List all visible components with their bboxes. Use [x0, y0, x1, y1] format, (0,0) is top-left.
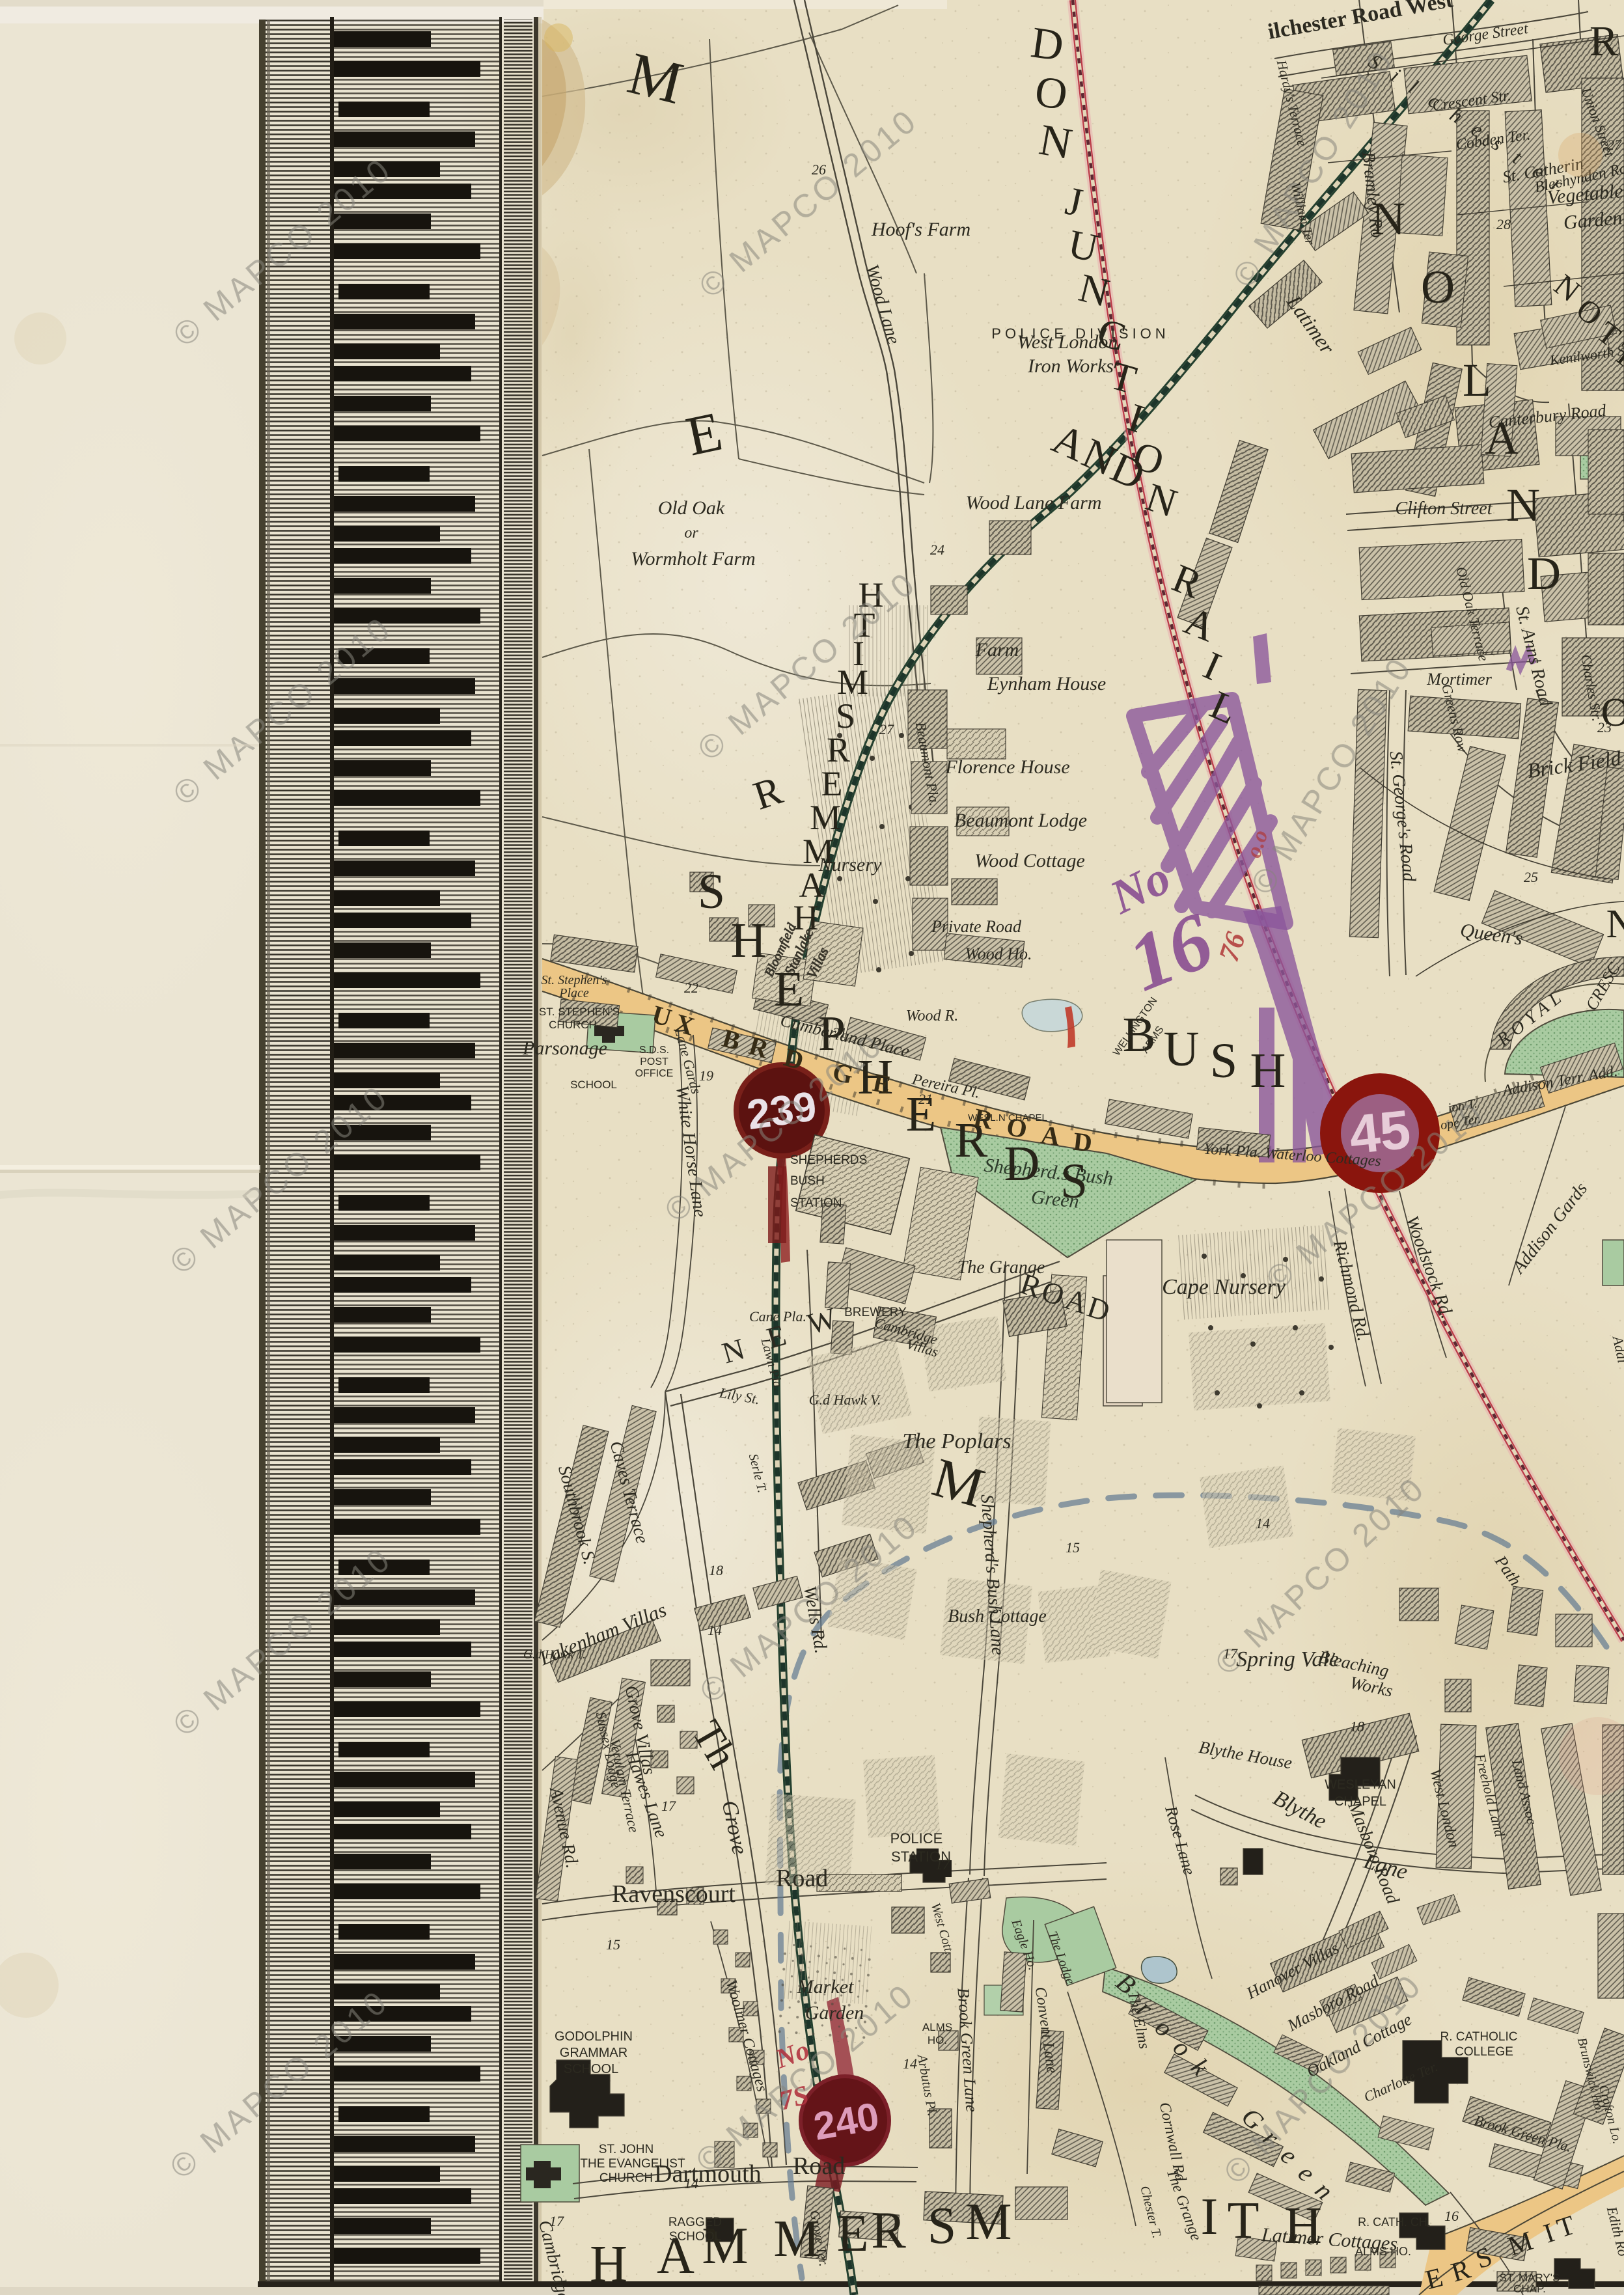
svg-text:Road: Road [793, 2152, 845, 2180]
svg-text:HO.: HO. [928, 2034, 947, 2046]
svg-text:STATION: STATION [790, 1196, 842, 1210]
svg-text:17: 17 [935, 1856, 950, 1873]
svg-text:Place: Place [558, 986, 589, 1000]
svg-text:S.D.S.: S.D.S. [639, 1045, 669, 1056]
svg-text:14: 14 [708, 1622, 722, 1638]
svg-text:17: 17 [549, 2213, 564, 2229]
svg-text:WESLEYAN: WESLEYAN [1325, 1778, 1396, 1792]
svg-text:CHAPEL: CHAPEL [1334, 1794, 1386, 1809]
svg-text:U: U [1164, 1022, 1200, 1077]
svg-text:21: 21 [918, 1091, 933, 1107]
svg-text:Market: Market [797, 1976, 854, 1998]
svg-text:H: H [1250, 1043, 1286, 1098]
svg-text:Garden: Garden [805, 2002, 864, 2024]
svg-text:Mortimer: Mortimer [1426, 670, 1493, 689]
svg-text:M: M [965, 2193, 1012, 2251]
svg-text:Iron Works: Iron Works [1027, 355, 1114, 377]
svg-text:SCHOOL: SCHOOL [564, 2062, 618, 2076]
svg-text:O: O [1421, 261, 1455, 313]
svg-text:S: S [1210, 1034, 1237, 1088]
svg-text:22: 22 [684, 980, 698, 996]
svg-text:Wood R.: Wood R. [906, 1008, 958, 1024]
svg-text:14: 14 [684, 2175, 698, 2192]
svg-text:G.d Hawk V.: G.d Hawk V. [809, 1392, 881, 1408]
svg-text:Hoof's Farm: Hoof's Farm [871, 219, 970, 240]
svg-text:24: 24 [930, 542, 944, 558]
svg-text:D: D [1004, 1136, 1040, 1191]
svg-text:17: 17 [661, 1798, 676, 1814]
svg-text:R: R [827, 730, 850, 769]
svg-text:14: 14 [1256, 1515, 1270, 1532]
svg-text:or: or [684, 525, 698, 542]
svg-text:15: 15 [606, 1936, 620, 1953]
svg-text:H: H [731, 913, 767, 968]
svg-text:COLLEGE: COLLEGE [1455, 2045, 1513, 2059]
svg-text:27: 27 [1607, 137, 1622, 153]
svg-text:GRAMMAR: GRAMMAR [560, 2046, 627, 2060]
svg-text:SCHOOL: SCHOOL [669, 2230, 721, 2244]
svg-text:Wormholt Farm: Wormholt Farm [631, 548, 755, 570]
svg-text:Wood Cottage: Wood Cottage [974, 850, 1085, 872]
svg-text:L: L [1463, 354, 1491, 406]
svg-text:Old Oak: Old Oak [658, 497, 725, 519]
svg-text:21: 21 [833, 1024, 847, 1041]
svg-text:Florence House: Florence House [944, 756, 1069, 778]
svg-text:BUSH: BUSH [790, 1174, 825, 1188]
svg-text:O: O [1032, 66, 1071, 119]
svg-text:E: E [821, 764, 843, 803]
svg-text:Dartmouth: Dartmouth [654, 2160, 762, 2188]
svg-text:WESL.N CHAPEL: WESL.N CHAPEL [968, 1112, 1047, 1123]
svg-text:16: 16 [1444, 2208, 1459, 2224]
svg-text:H: H [590, 2236, 627, 2293]
svg-text:POST: POST [640, 1056, 668, 1067]
svg-text:27: 27 [879, 721, 894, 737]
svg-text:S: S [1060, 1154, 1088, 1209]
svg-text:Parsonage: Parsonage [522, 1038, 607, 1059]
svg-text:E: E [837, 2205, 869, 2262]
svg-text:R. CATHOLIC: R. CATHOLIC [1440, 2030, 1518, 2044]
svg-text:19: 19 [699, 1067, 713, 1084]
svg-text:BREWERY: BREWERY [844, 1306, 907, 1319]
svg-text:OFFICE: OFFICE [635, 1068, 674, 1079]
svg-text:ST. STEPHEN'S: ST. STEPHEN'S [539, 1006, 620, 1018]
svg-text:18: 18 [709, 1562, 723, 1578]
svg-text:ALMS: ALMS [922, 2021, 952, 2033]
svg-text:RAGGED: RAGGED [668, 2216, 722, 2229]
svg-text:25: 25 [1524, 869, 1538, 885]
svg-text:Road: Road [776, 1865, 828, 1892]
svg-text:S: S [928, 2197, 957, 2255]
svg-text:CHAP.: CHAP. [1513, 2283, 1546, 2295]
svg-text:R. CATH. CH.: R. CATH. CH. [1358, 2216, 1431, 2229]
svg-text:The Poplars: The Poplars [902, 1429, 1011, 1453]
svg-text:N: N [1606, 902, 1624, 946]
svg-text:Farm: Farm [975, 639, 1019, 661]
svg-text:14: 14 [903, 2055, 917, 2072]
svg-text:S: S [698, 864, 725, 919]
svg-text:Wood Ho.: Wood Ho. [965, 944, 1032, 963]
svg-text:Private Road: Private Road [931, 917, 1022, 936]
svg-text:28: 28 [1496, 216, 1511, 232]
svg-text:GODOLPHIN: GODOLPHIN [555, 2029, 633, 2044]
svg-text:CHURCH: CHURCH [599, 2171, 653, 2185]
svg-text:ALMS HO.: ALMS HO. [1355, 2245, 1411, 2258]
svg-text:S: S [836, 696, 855, 735]
svg-text:D: D [1072, 1127, 1094, 1158]
svg-text:Eynham House: Eynham House [987, 673, 1106, 694]
svg-text:ST. JOHN: ST. JOHN [599, 2143, 654, 2156]
svg-text:15: 15 [1066, 1539, 1080, 1556]
svg-text:M: M [810, 798, 841, 837]
svg-text:D: D [1028, 17, 1067, 70]
svg-text:17: 17 [1223, 1645, 1238, 1662]
svg-text:26: 26 [812, 161, 826, 178]
svg-text:POLICE DIVISION: POLICE DIVISION [991, 325, 1169, 342]
svg-text:CHURCH: CHURCH [549, 1019, 597, 1031]
svg-text:R: R [1590, 18, 1618, 65]
svg-text:T: T [1228, 2192, 1259, 2249]
svg-text:Cape Nursery: Cape Nursery [1162, 1275, 1286, 1299]
svg-text:Nursery: Nursery [818, 854, 882, 875]
svg-text:Wood Lane Farm: Wood Lane Farm [966, 492, 1102, 514]
svg-text:Ravenscourt: Ravenscourt [612, 1880, 736, 1908]
svg-text:G.d Hawk T.: G.d Hawk T. [523, 1648, 586, 1662]
svg-text:D: D [1527, 547, 1561, 599]
svg-text:Clifton Street: Clifton Street [1395, 499, 1493, 519]
svg-text:E: E [774, 962, 804, 1017]
svg-text:SHEPHERDS: SHEPHERDS [790, 1153, 867, 1167]
svg-text:SCHOOL: SCHOOL [570, 1079, 617, 1091]
svg-text:Beaumont Lodge: Beaumont Lodge [954, 810, 1087, 831]
svg-text:N: N [1506, 479, 1540, 531]
svg-text:R: R [871, 2202, 906, 2259]
svg-text:18: 18 [1350, 1718, 1364, 1735]
svg-text:23: 23 [1597, 719, 1612, 735]
svg-text:POLICE: POLICE [890, 1830, 943, 1847]
svg-text:St. Stephen's: St. Stephen's [542, 973, 607, 987]
